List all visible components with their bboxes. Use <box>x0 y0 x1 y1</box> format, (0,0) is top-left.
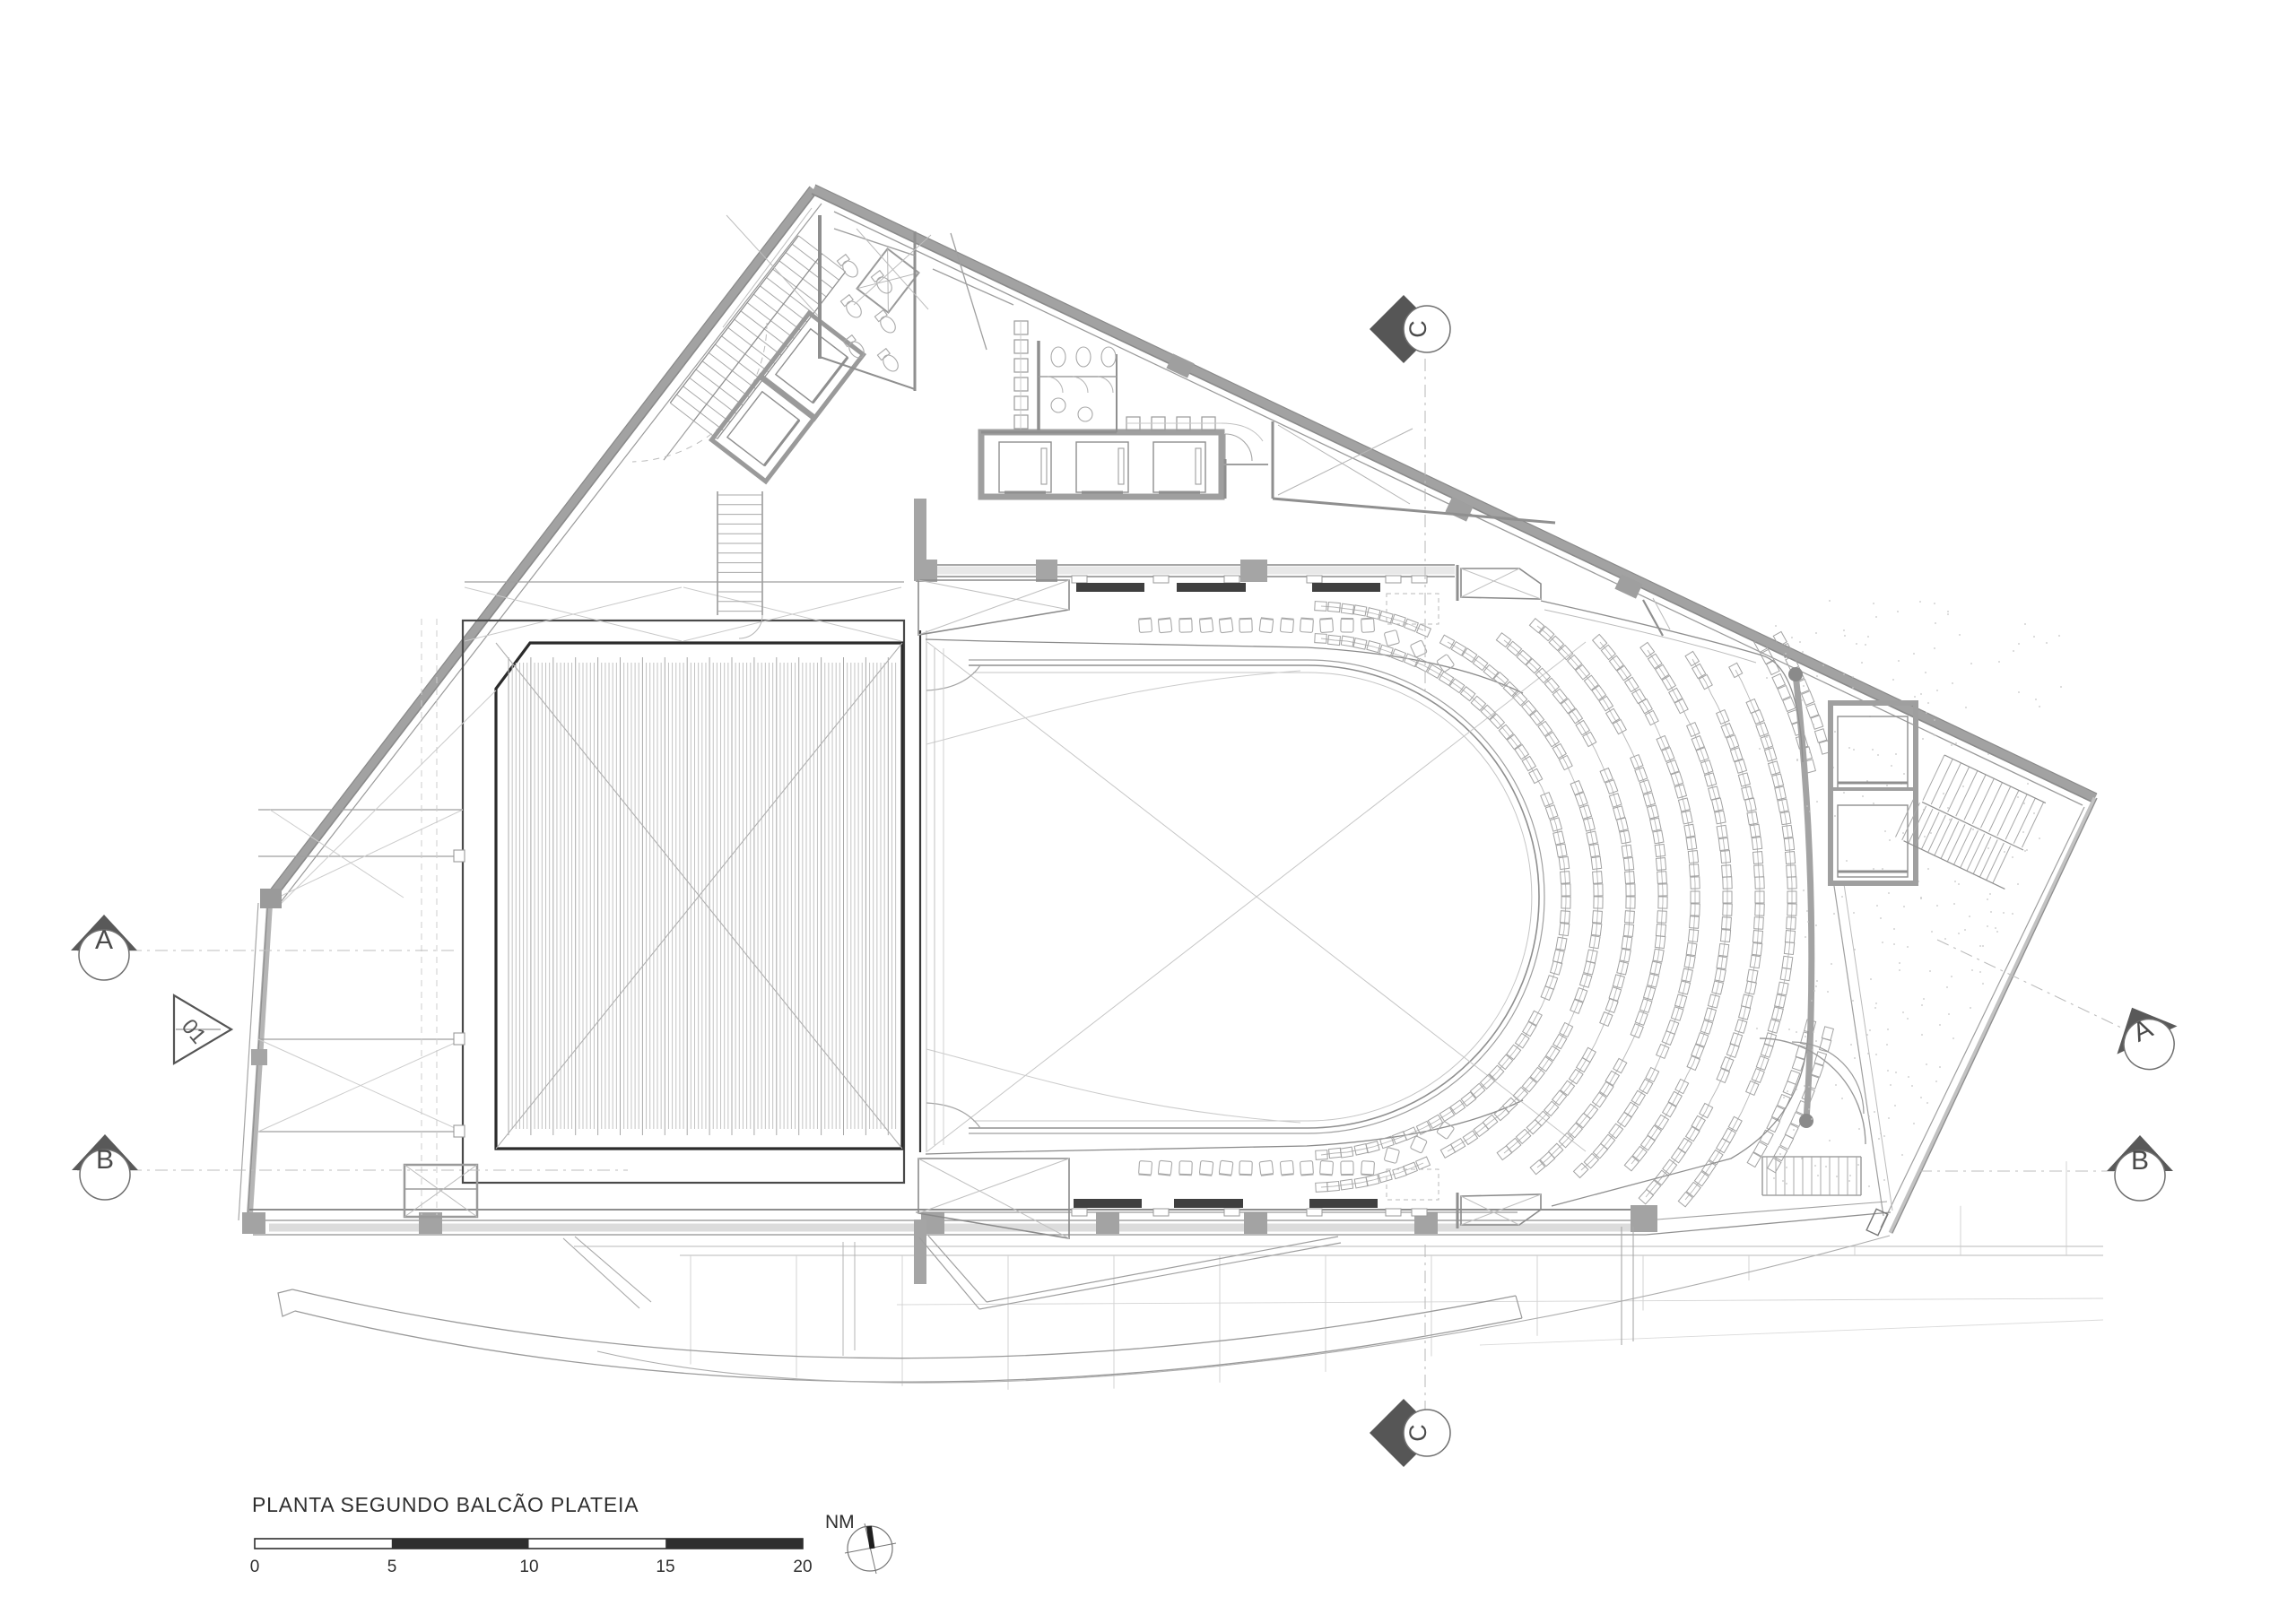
svg-text:A: A <box>95 925 113 955</box>
svg-text:C: C <box>1405 320 1431 338</box>
svg-text:20: 20 <box>793 1558 812 1576</box>
svg-text:C: C <box>1405 1424 1431 1442</box>
svg-text:15: 15 <box>656 1558 674 1576</box>
svg-text:10: 10 <box>519 1558 538 1576</box>
svg-text:B: B <box>2131 1146 2149 1176</box>
svg-text:0: 0 <box>250 1558 260 1576</box>
svg-text:PLANTA SEGUNDO BALCÃO PLATEIA: PLANTA SEGUNDO BALCÃO PLATEIA <box>252 1493 639 1516</box>
svg-text:NM: NM <box>825 1512 855 1532</box>
svg-text:5: 5 <box>387 1558 397 1576</box>
svg-text:B: B <box>96 1145 114 1175</box>
